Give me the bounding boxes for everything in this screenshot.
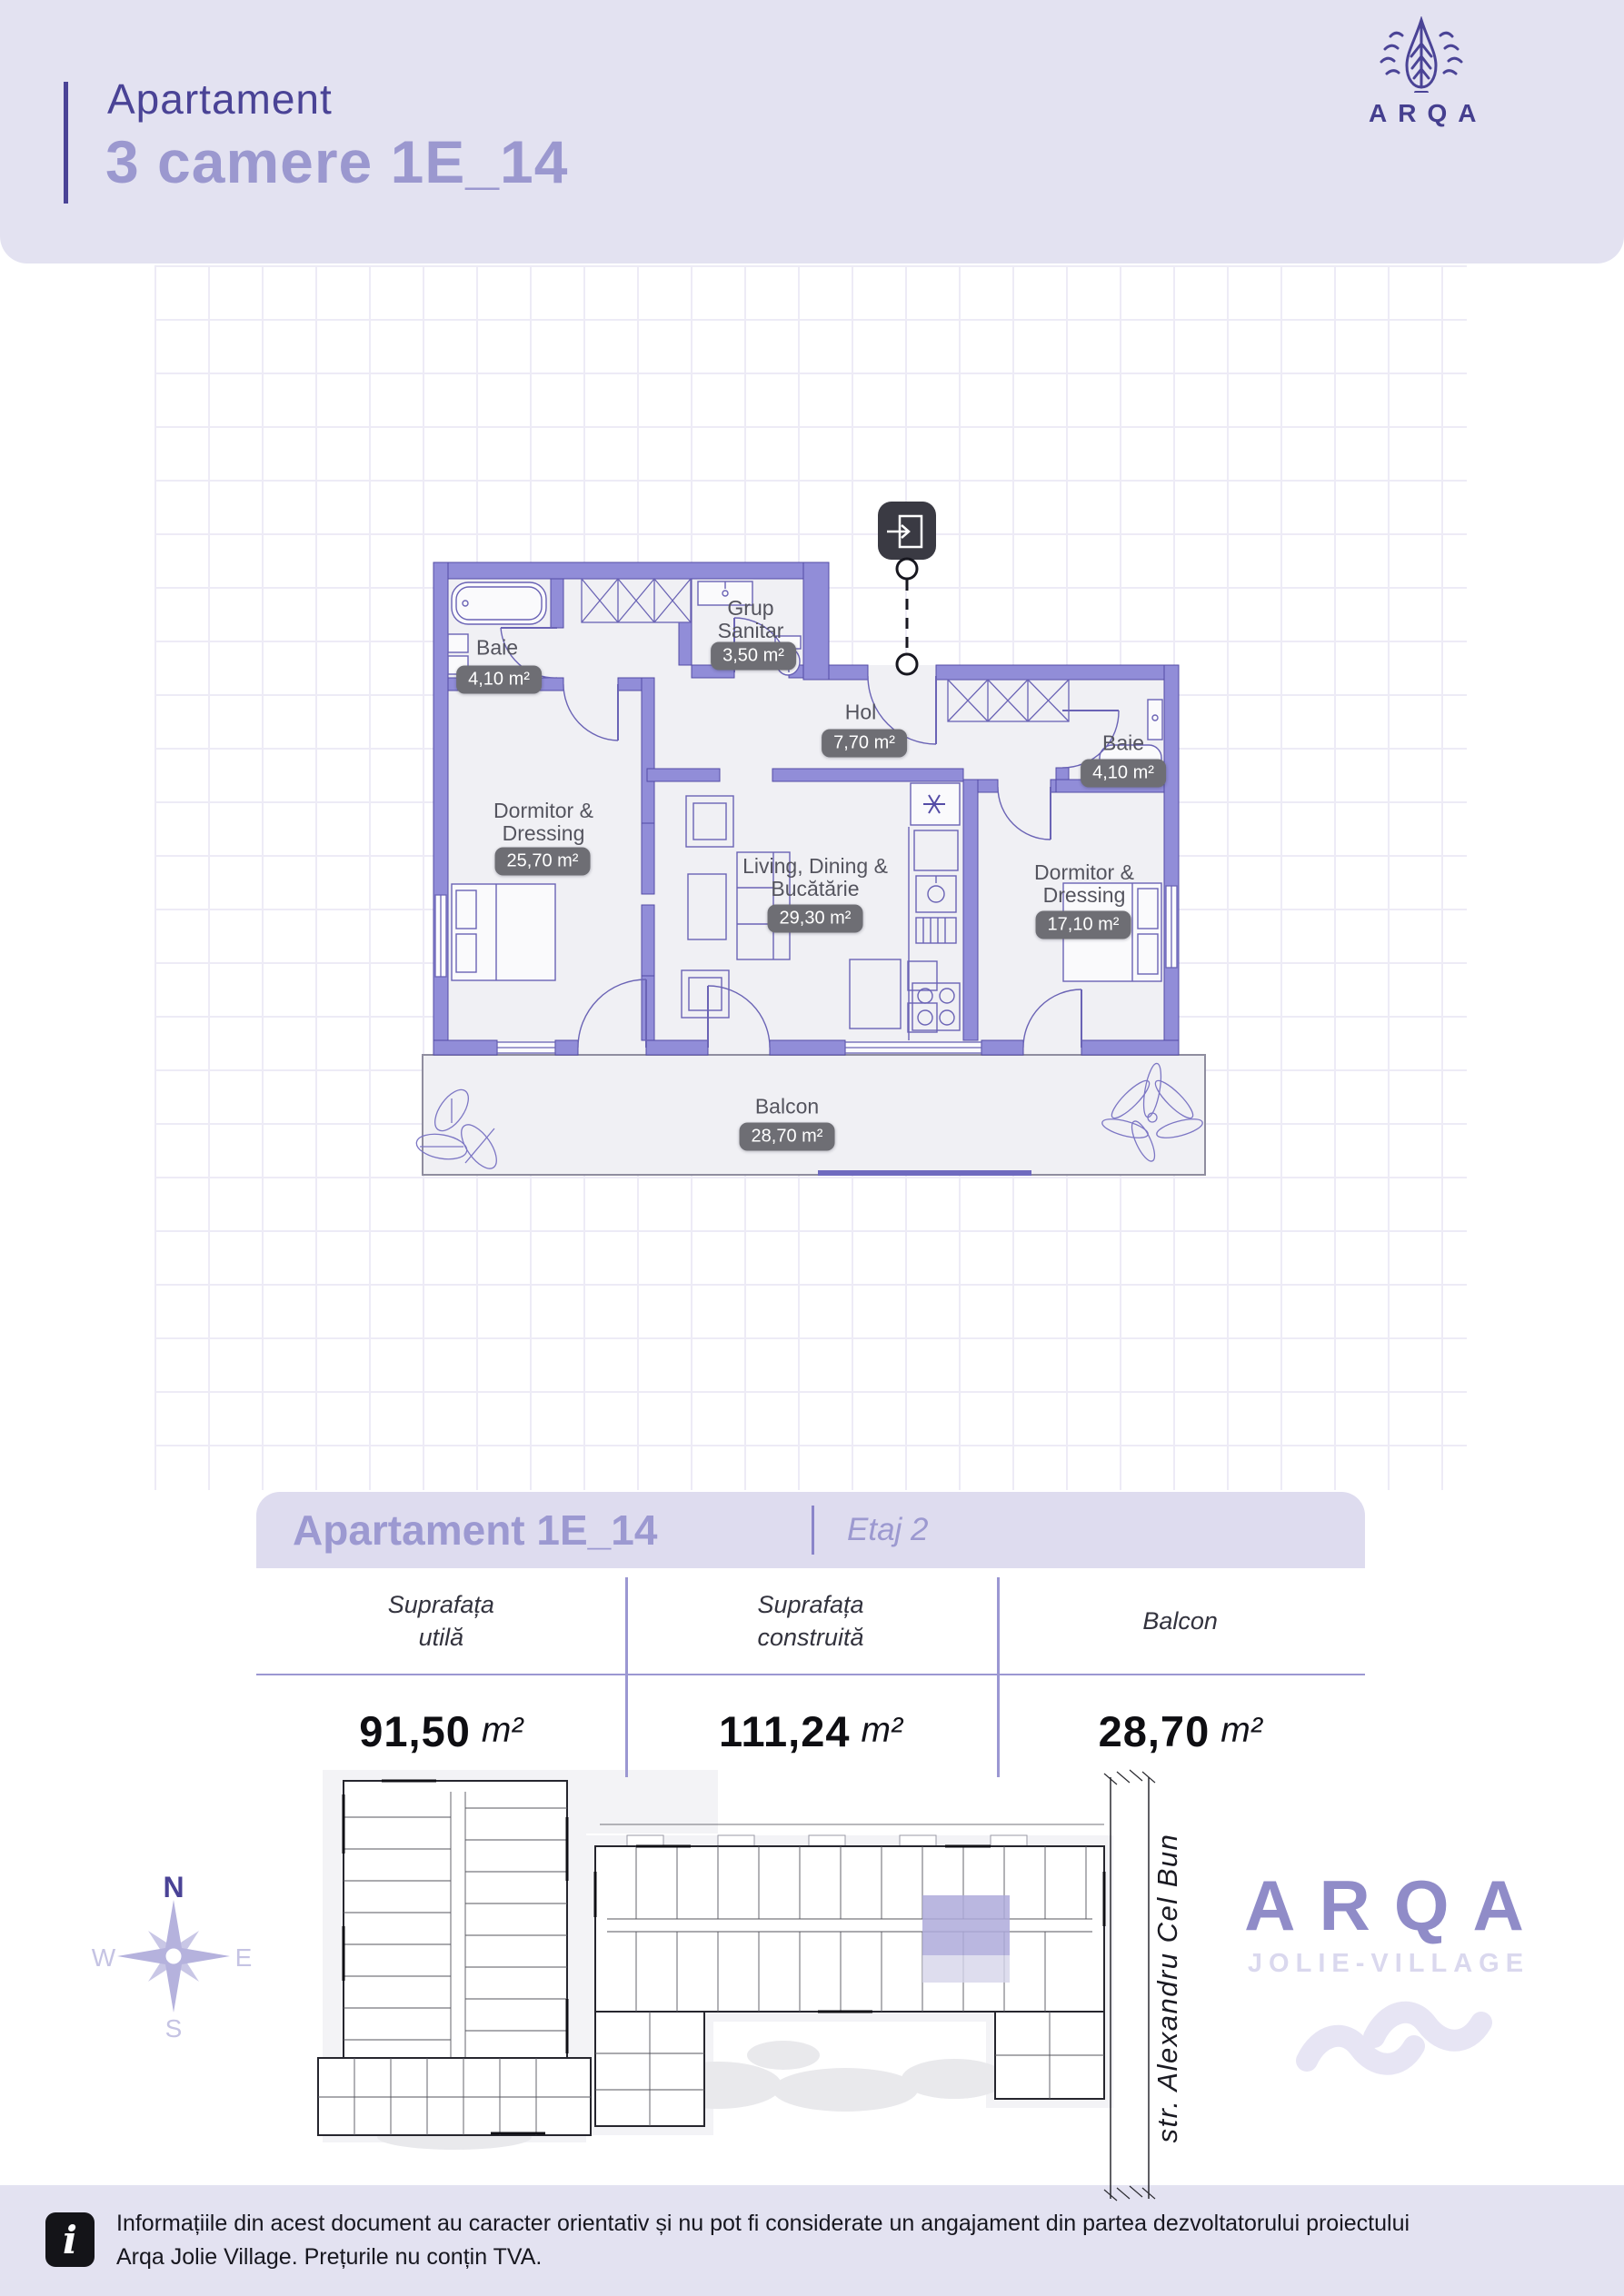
brochure-page: Apartament 3 camere 1E_14 bbox=[0, 0, 1624, 2296]
col-header-utila: Suprafața utilă bbox=[256, 1568, 626, 1674]
value-utila: 91,50 m² bbox=[256, 1675, 626, 1786]
footer-disclaimer: Informațiile din acest document au carac… bbox=[116, 2207, 1410, 2274]
floor-plan bbox=[0, 0, 1624, 1508]
room-area-grup-sanitar: 3,50 m² bbox=[711, 642, 796, 671]
value-construita: 111,24 m² bbox=[626, 1675, 996, 1786]
entrance-marker-icon bbox=[878, 502, 936, 674]
summary-card-header: Apartament 1E_14 Etaj 2 bbox=[256, 1492, 1365, 1568]
floor-label: Etaj 2 bbox=[847, 1512, 929, 1548]
room-area-baie-right: 4,10 m² bbox=[1081, 760, 1166, 788]
wardrobe-right-icon bbox=[948, 680, 1069, 721]
room-area-hol: 7,70 m² bbox=[822, 730, 907, 758]
col-header-balcon: Balcon bbox=[995, 1568, 1365, 1674]
summary-card: Apartament 1E_14 Etaj 2 Suprafața utilă … bbox=[256, 1492, 1365, 1784]
room-area-baie-left: 4,10 m² bbox=[456, 666, 542, 694]
highlighted-unit bbox=[922, 1895, 1010, 1955]
wave-icon bbox=[1307, 2013, 1481, 2064]
site-brand-sub: JOLIE-VILLAGE bbox=[1248, 1949, 1529, 1978]
col-header-construita: Suprafața construită bbox=[626, 1568, 996, 1674]
site-plan: str. Alexandru Cel Bun N E S W ARQA JOLI… bbox=[0, 1763, 1624, 2217]
room-area-dormitor-right: 17,10 m² bbox=[1036, 911, 1131, 939]
table-divider-1 bbox=[625, 1577, 628, 1777]
room-name-dormitor-left: Dormitor &Dressing bbox=[493, 800, 593, 845]
room-name-hol: Hol bbox=[845, 701, 877, 724]
compass-w: W bbox=[92, 1943, 116, 1972]
room-area-balcon: 28,70 m² bbox=[740, 1123, 835, 1151]
site-brand: ARQA JOLIE-VILLAGE bbox=[1244, 1865, 1548, 2064]
info-icon: i bbox=[45, 2212, 95, 2267]
room-name-balcon: Balcon bbox=[755, 1096, 819, 1118]
card-divider bbox=[812, 1506, 814, 1555]
room-area-living: 29,30 m² bbox=[768, 905, 863, 933]
street-label: str. Alexandru Cel Bun bbox=[1151, 1834, 1183, 2143]
room-area-dormitor-left: 25,70 m² bbox=[495, 848, 591, 876]
room-name-living: Living, Dining &Bucătărie bbox=[742, 855, 888, 900]
compass-icon: N E S W bbox=[92, 1871, 253, 2043]
compass-s: S bbox=[165, 2014, 183, 2043]
site-brand-wordmark: ARQA bbox=[1244, 1865, 1548, 1945]
table-divider-2 bbox=[997, 1577, 1000, 1777]
compass-e: E bbox=[235, 1943, 253, 1972]
room-name-grup-sanitar: GrupSanitar bbox=[718, 597, 784, 642]
summary-table: Suprafața utilă Suprafața construită Bal… bbox=[256, 1568, 1365, 1784]
value-balcon: 28,70 m² bbox=[995, 1675, 1365, 1786]
apartment-id: Apartament 1E_14 bbox=[293, 1506, 657, 1555]
room-name-dormitor-right: Dormitor &Dressing bbox=[1034, 861, 1134, 907]
building-left bbox=[318, 1781, 591, 2135]
compass-n: N bbox=[163, 1871, 184, 1903]
room-name-baie-left: Baie bbox=[476, 637, 518, 660]
street: str. Alexandru Cel Bun bbox=[1104, 1770, 1183, 2201]
room-name-baie-right: Baie bbox=[1102, 732, 1144, 755]
wardrobe-left-icon bbox=[582, 579, 691, 622]
